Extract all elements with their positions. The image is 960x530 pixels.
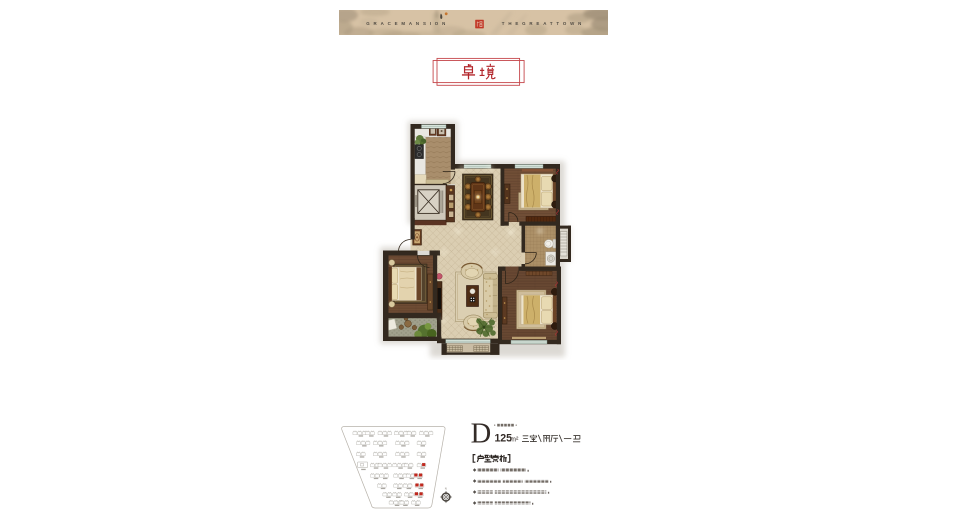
svg-text:N: N — [445, 487, 447, 491]
svg-text:m²: m² — [510, 434, 519, 443]
svg-text:D: D — [471, 418, 492, 447]
svg-text:THEGREATTOWN: THEGREATTOWN — [502, 21, 585, 26]
svg-text:GRACEMANSION: GRACEMANSION — [366, 21, 449, 26]
